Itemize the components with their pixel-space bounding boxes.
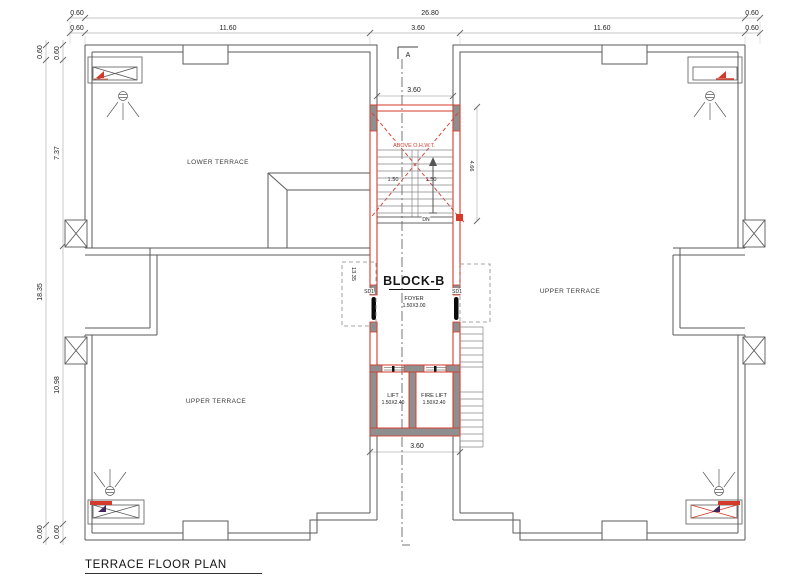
red-marker <box>96 71 104 78</box>
core-shaft <box>342 105 490 436</box>
dim-row2-060l: 0.60 <box>70 25 84 32</box>
parapet-l-wall <box>268 173 370 248</box>
dim-top-total: 26.80 <box>421 10 439 17</box>
section-marker-label: A <box>406 52 411 59</box>
duct-bottom-right <box>686 500 742 524</box>
corner-ducts <box>88 57 742 524</box>
light-bottom-right <box>703 469 735 496</box>
label-sd1-left: SD1 <box>364 289 374 295</box>
label-dn: DN <box>422 217 430 223</box>
floor-plan-drawing: 0.60 26.80 0.60 0.60 11.60 3.60 11.60 0.… <box>0 0 800 582</box>
label-fire-lift: FIRE LIFT <box>421 393 447 399</box>
red-marker <box>718 71 726 78</box>
terrace-floor-plan-sheet: 0.60 26.80 0.60 0.60 11.60 3.60 11.60 0.… <box>0 0 800 582</box>
dim-left2-060t: 0.60 <box>54 46 61 60</box>
pier-bottom-left <box>183 521 228 540</box>
stair-treads <box>377 150 453 217</box>
page-title: TERRACE FLOOR PLAN <box>85 559 227 571</box>
label-upper-terrace-right: UPPER TERRACE <box>540 288 601 295</box>
duct-top-left <box>88 57 142 83</box>
plan-walls <box>85 45 745 540</box>
dim-row2-1160l: 11.60 <box>220 25 237 32</box>
dim-left1-060t: 0.60 <box>37 45 44 59</box>
label-lower-terrace: LOWER TERRACE <box>187 159 249 166</box>
dim-left1-1835: 18.35 <box>37 283 44 301</box>
label-lift-size: 1.50X2.40 <box>382 400 405 406</box>
label-block-b: BLOCK-B <box>383 274 445 288</box>
label-foyer: FOYER <box>404 296 423 302</box>
dim-left1-060b: 0.60 <box>37 525 44 539</box>
dim-notch-top: 3.60 <box>407 87 421 94</box>
label-foyer-size: 1.50X3.00 <box>403 303 426 309</box>
sliding-door-left <box>372 297 377 320</box>
edge-columns <box>65 220 765 364</box>
dim-row2-1160r: 11.60 <box>594 25 611 32</box>
light-top-right <box>694 92 726 121</box>
dim-row2-360: 3.60 <box>411 25 425 32</box>
red-corner-marker <box>456 214 463 221</box>
red-marker <box>718 501 740 505</box>
dim-top-left-060: 0.60 <box>70 10 84 17</box>
duct-top-right <box>688 57 742 83</box>
dim-stair-well: 4.66 <box>468 161 474 172</box>
label-upper-terrace-left: UPPER TERRACE <box>186 398 247 405</box>
pier-top-right <box>602 45 647 64</box>
dim-top-right-060: 0.60 <box>745 10 759 17</box>
label-lift: LIFT <box>387 393 399 399</box>
label-fire-lift-size: 1.50X2.40 <box>423 400 446 406</box>
dim-left2-737: 7.37 <box>54 146 61 160</box>
dim-left2-060b: 0.60 <box>54 525 61 539</box>
pier-top-left <box>183 45 228 64</box>
dim-notch-bottom: 3.60 <box>410 443 424 450</box>
core-columns <box>370 105 460 436</box>
dim-row2-060r: 0.60 <box>745 25 759 32</box>
label-sd1-right: SD1 <box>452 289 462 295</box>
external-stair <box>460 327 483 447</box>
duct-bottom-left <box>88 500 144 524</box>
dim-left2-1098: 10.98 <box>54 376 61 394</box>
red-marker <box>90 501 112 505</box>
light-top-left <box>107 92 139 121</box>
light-bottom-left <box>94 469 126 496</box>
drawing-title: TERRACE FLOOR PLAN <box>85 559 262 574</box>
dashed-opening-right <box>460 264 490 322</box>
label-above-ohwt: ABOVE O.H.W.T. <box>393 143 435 149</box>
dim-foyer-side: 13.35 <box>350 267 356 281</box>
stair-landing-wall <box>377 217 453 223</box>
pier-bottom-right <box>602 521 647 540</box>
sliding-door-right <box>454 297 459 320</box>
